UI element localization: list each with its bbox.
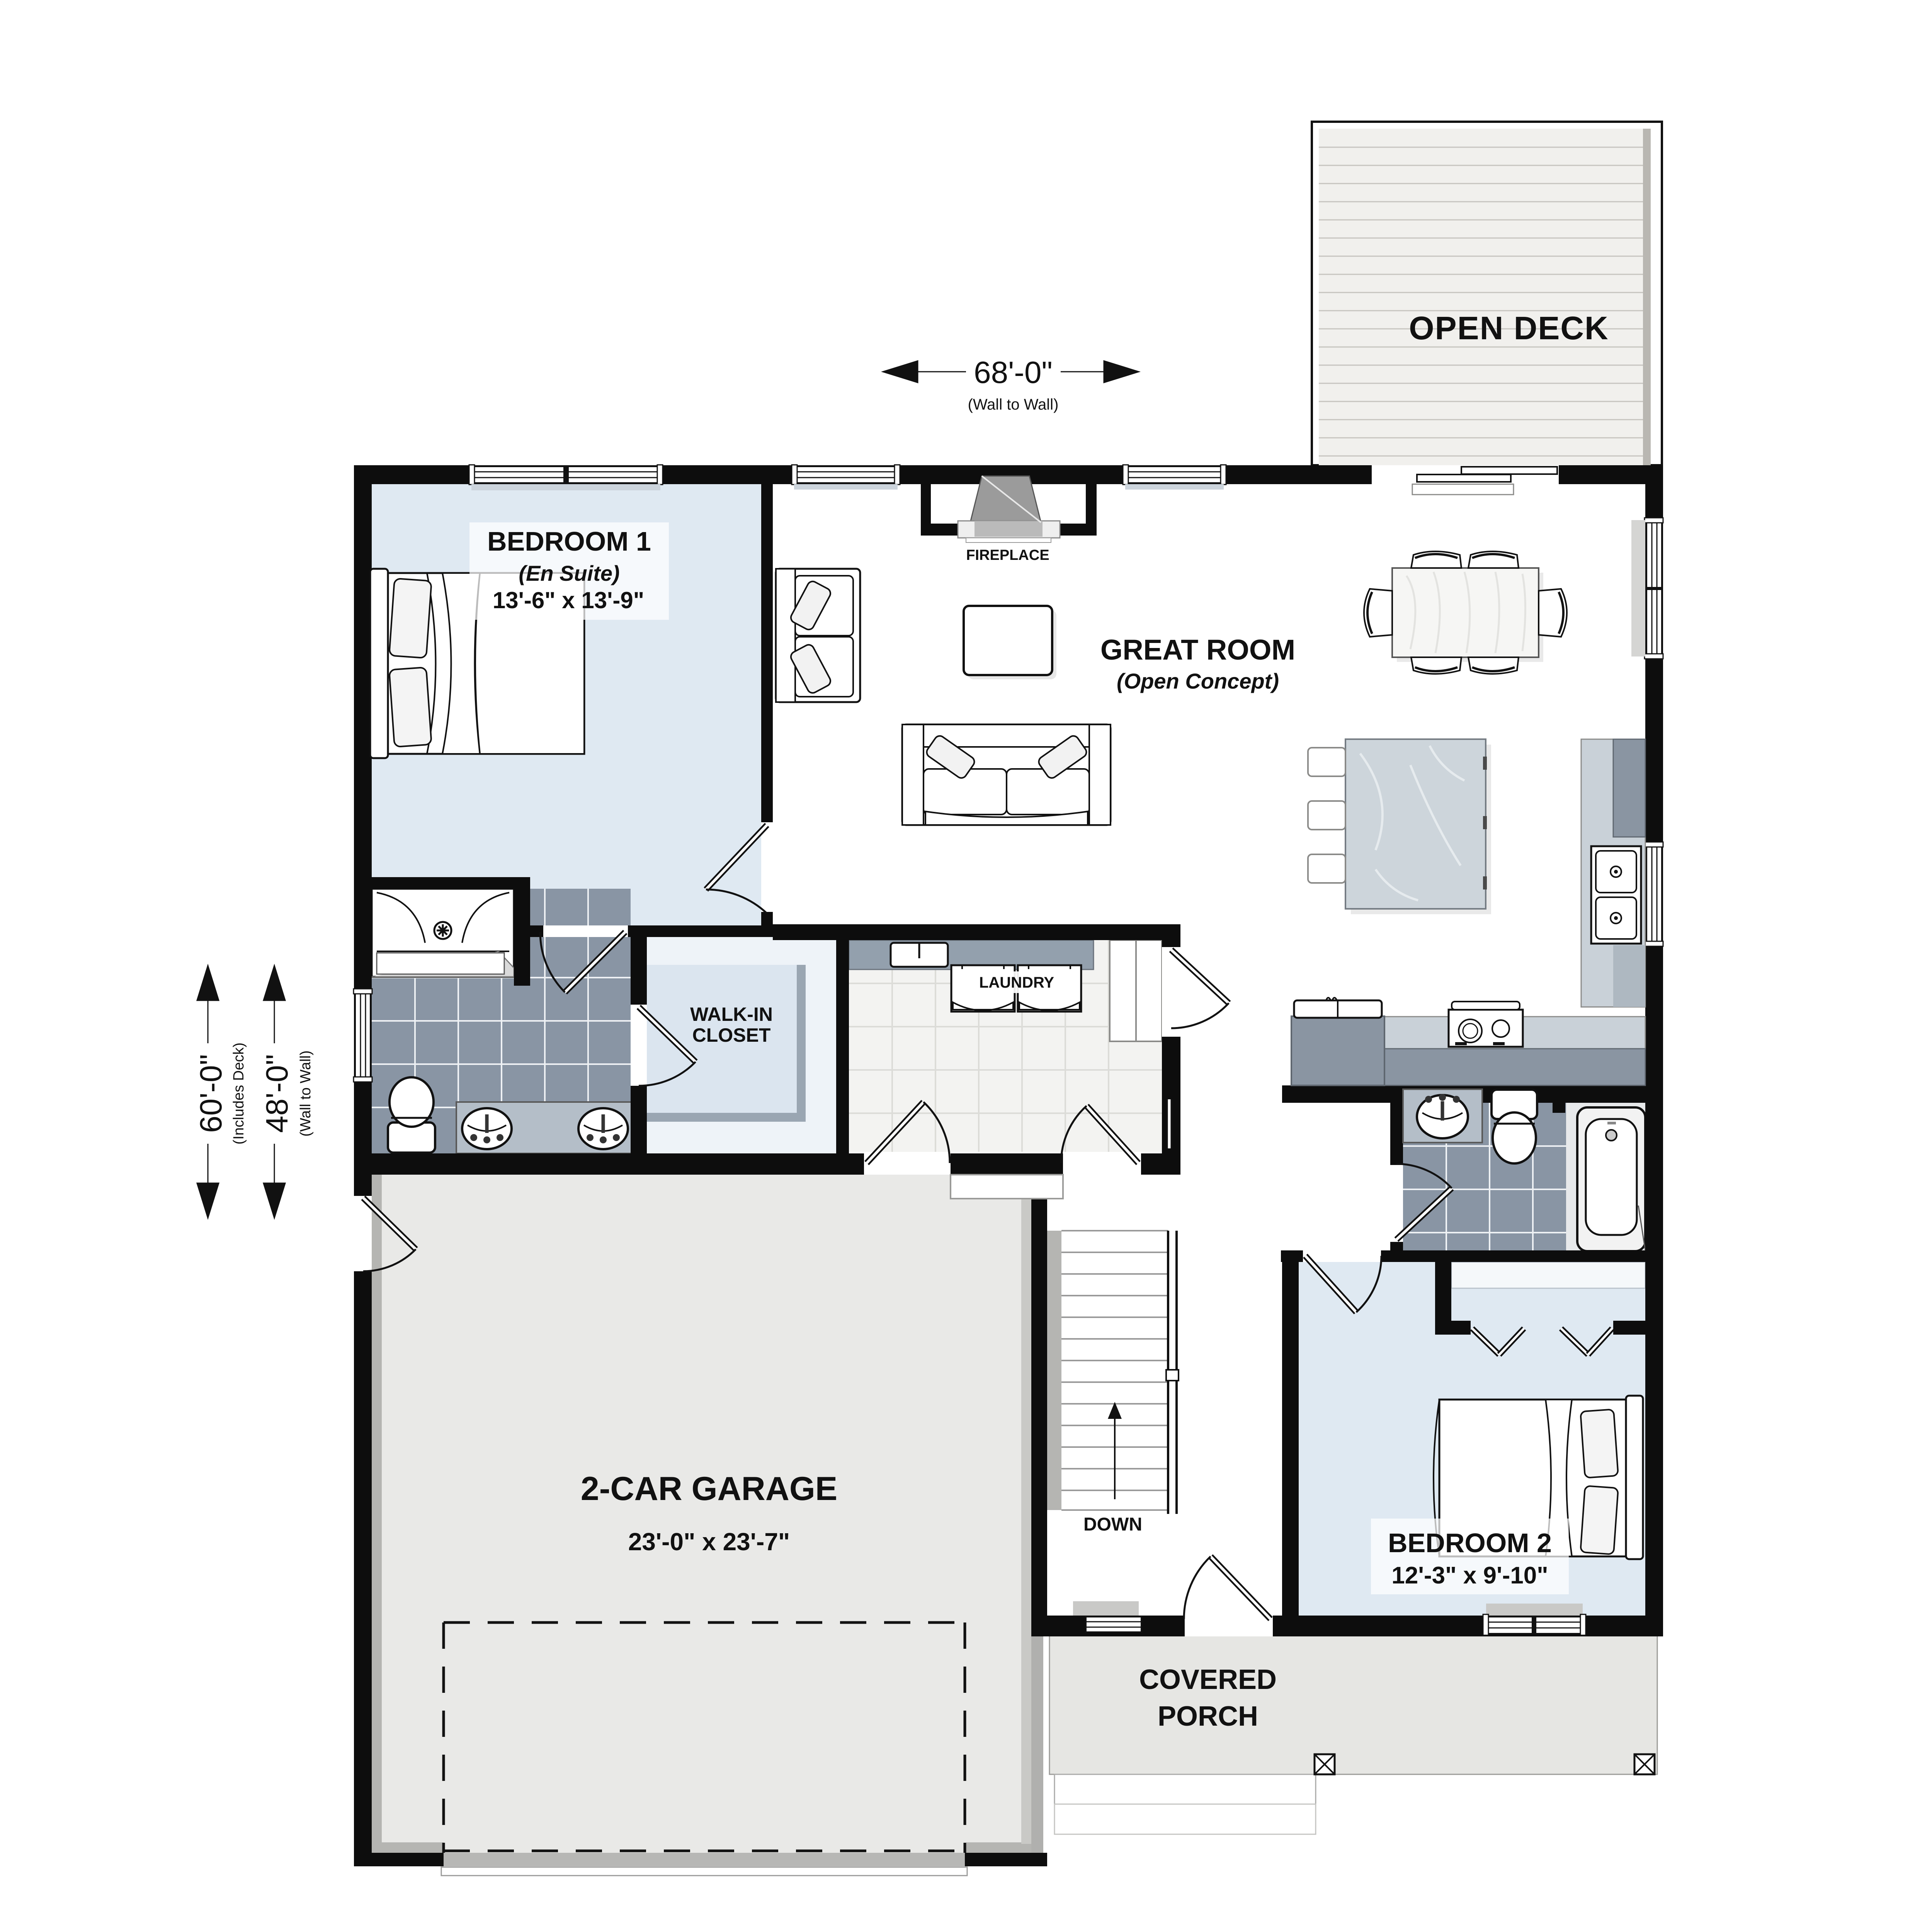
svg-text:OPEN DECK: OPEN DECK [1409, 310, 1609, 346]
svg-text:FIREPLACE: FIREPLACE [966, 547, 1049, 563]
svg-text:(Wall to Wall): (Wall to Wall) [298, 1050, 314, 1136]
svg-text:2-CAR GARAGE: 2-CAR GARAGE [581, 1470, 837, 1507]
svg-text:BEDROOM 1: BEDROOM 1 [487, 526, 651, 556]
svg-text:DOWN: DOWN [1083, 1514, 1142, 1535]
svg-text:PORCH: PORCH [1158, 1701, 1258, 1732]
svg-text:(Includes Deck): (Includes Deck) [231, 1043, 247, 1145]
svg-text:BEDROOM 2: BEDROOM 2 [1388, 1528, 1552, 1558]
svg-text:23'-0" x 23'-7": 23'-0" x 23'-7" [628, 1528, 790, 1556]
svg-text:LAUNDRY: LAUNDRY [979, 974, 1054, 991]
svg-text:12'-3" x 9'-10": 12'-3" x 9'-10" [1391, 1562, 1548, 1589]
svg-text:48'-0": 48'-0" [260, 1054, 294, 1133]
svg-text:COVERED: COVERED [1139, 1664, 1277, 1695]
svg-text:13'-6" x 13'-9": 13'-6" x 13'-9" [493, 587, 644, 613]
svg-text:(En Suite): (En Suite) [519, 561, 619, 585]
svg-text:60'-0": 60'-0" [194, 1054, 228, 1133]
svg-text:GREAT ROOM: GREAT ROOM [1100, 634, 1295, 666]
svg-text:(Open Concept): (Open Concept) [1117, 669, 1279, 693]
svg-text:(Wall to Wall): (Wall to Wall) [968, 396, 1059, 413]
svg-text:CLOSET: CLOSET [692, 1024, 771, 1046]
svg-text:WALK-IN: WALK-IN [690, 1003, 773, 1025]
svg-text:68'-0": 68'-0" [974, 355, 1053, 389]
